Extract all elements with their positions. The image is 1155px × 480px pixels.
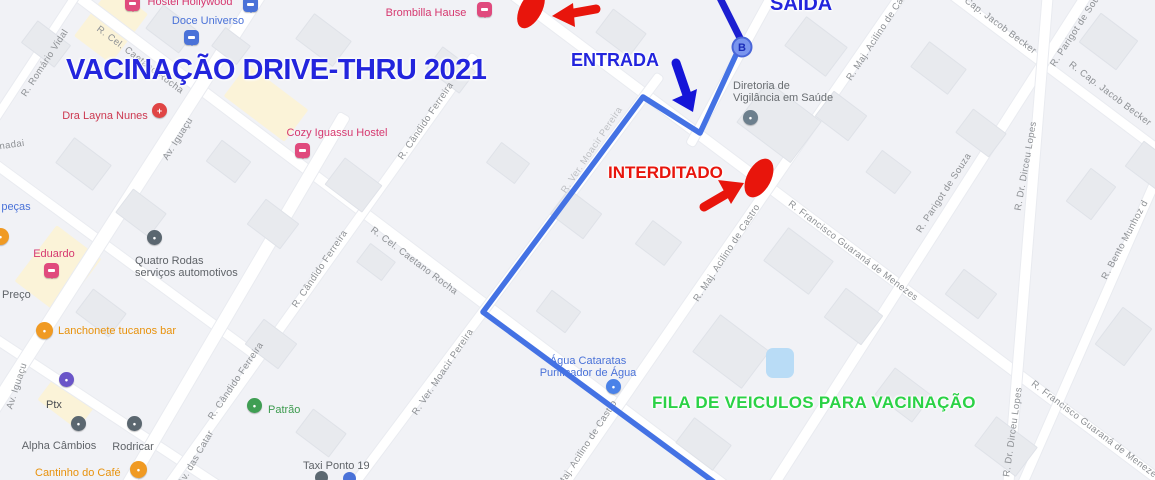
street-label: R. Maj. Acilino de Castro: [548, 398, 619, 480]
street-label: R. Ver. Moacir Pereira: [410, 327, 476, 417]
cozy-iguassu-hostel-pin[interactable]: [295, 143, 310, 158]
building: [692, 314, 770, 389]
patrao-pin[interactable]: •: [247, 398, 262, 413]
building: [1095, 307, 1153, 367]
brombilla-hause-label[interactable]: Brombilla Hause: [386, 7, 467, 19]
building: [635, 220, 683, 266]
building: [784, 16, 848, 77]
red-arrow-top-shaft: [568, 9, 596, 14]
agua-cataratas-pin[interactable]: •: [606, 379, 621, 394]
taxi-ponto-19-label[interactable]: Taxi Ponto 19: [303, 460, 370, 472]
building: [1066, 168, 1117, 221]
hostel-hollywood-label[interactable]: Hostel Hollywood: [148, 0, 233, 8]
eduardo-pin[interactable]: [44, 263, 59, 278]
building: [910, 41, 967, 95]
hostel-hollywood-pin[interactable]: [125, 0, 140, 11]
doce-universo-pin[interactable]: [184, 30, 199, 45]
road: [346, 72, 664, 480]
street-label: R. Bento Munhoz d: [1099, 199, 1150, 282]
lanchonete-tucanos-label[interactable]: Lanchonete tucanos bar: [58, 325, 176, 337]
red-arrow-interditado-shaft: [704, 193, 728, 207]
building: [536, 290, 582, 334]
eduardo-label[interactable]: Eduardo: [33, 248, 75, 260]
map-canvas[interactable]: R. Romário VidalnadaiR. Cel. Caetano Roc…: [0, 0, 1155, 480]
pecas-label[interactable]: peças: [1, 201, 30, 213]
entrada-label: ENTRADA: [571, 50, 659, 71]
building: [865, 150, 911, 195]
patrao-label[interactable]: Patrão: [268, 404, 300, 416]
map-title: VACINAÇÃO DRIVE-THRU 2021: [66, 54, 486, 87]
building: [550, 189, 603, 240]
street-label: R. Cândido Ferreira: [290, 228, 350, 310]
fila-label: FILA DE VEICULOS PARA VACINAÇÃO: [652, 393, 976, 413]
doce-universo-label[interactable]: Doce Universo: [172, 15, 244, 27]
route-line-dark-saida: [718, 0, 741, 40]
ptx-label[interactable]: Ptx: [46, 399, 62, 411]
blue-pin-top-pin[interactable]: [243, 0, 258, 12]
alpha-cambios-pin[interactable]: •: [71, 416, 86, 431]
entrada-arrow-shaft: [676, 63, 687, 95]
cantinho-do-cafe-label[interactable]: Cantinho do Café: [35, 467, 121, 479]
preco-label[interactable]: Preço: [2, 289, 31, 301]
building: [955, 108, 1007, 157]
rodricar-pin[interactable]: •: [127, 416, 142, 431]
building: [295, 408, 347, 457]
cantinho-do-cafe-icon[interactable]: •: [130, 461, 147, 478]
street-label: R. Maj. Acilino de Castro: [691, 202, 762, 304]
rodricar-label[interactable]: Rodricar: [112, 441, 154, 453]
diretoria-vigilancia-pin[interactable]: •: [743, 110, 758, 125]
building: [763, 227, 834, 295]
quatro-rodas-pin[interactable]: •: [147, 230, 162, 245]
interditado-label: INTERDITADO: [608, 163, 723, 183]
building: [55, 137, 112, 191]
agua-cataratas-label[interactable]: Água CataratasPurificador de Água: [540, 355, 637, 379]
alpha-cambios-label[interactable]: Alpha Câmbios: [22, 440, 97, 452]
building: [206, 140, 252, 184]
quatro-rodas-label[interactable]: Quatro Rodasserviços automotivos: [135, 255, 238, 279]
taxi-dot-1[interactable]: [315, 471, 328, 480]
red-arrow-interditado-head: [718, 180, 744, 204]
ptx-pin[interactable]: •: [59, 372, 74, 387]
building: [824, 288, 884, 346]
lanchonete-tucanos-icon[interactable]: •: [36, 322, 53, 339]
street-label: R. Cândido Ferreira: [396, 80, 456, 162]
dra-layna-nunes-pin[interactable]: +: [152, 103, 167, 118]
street-label: nadai: [0, 138, 25, 152]
orange-poi-partial-icon[interactable]: •: [0, 228, 9, 245]
taxi-dot-2[interactable]: [343, 472, 356, 480]
building: [1125, 141, 1155, 192]
cozy-iguassu-hostel-label[interactable]: Cozy Iguassu Hostel: [287, 127, 388, 139]
street-label: R. Maj. Acilino de Castro: [844, 0, 915, 83]
diretoria-vigilancia-label[interactable]: Diretoria deVigilância em Saúde: [733, 80, 833, 104]
dra-layna-nunes-label[interactable]: Dra Layna Nunes: [62, 110, 148, 122]
building: [675, 417, 732, 471]
brombilla-hause-pin[interactable]: [477, 2, 492, 17]
saida-label: SAÍDA: [770, 0, 832, 16]
entrada-arrow-head: [672, 89, 697, 112]
building: [486, 142, 530, 184]
building: [945, 269, 998, 320]
pond: [766, 348, 794, 378]
